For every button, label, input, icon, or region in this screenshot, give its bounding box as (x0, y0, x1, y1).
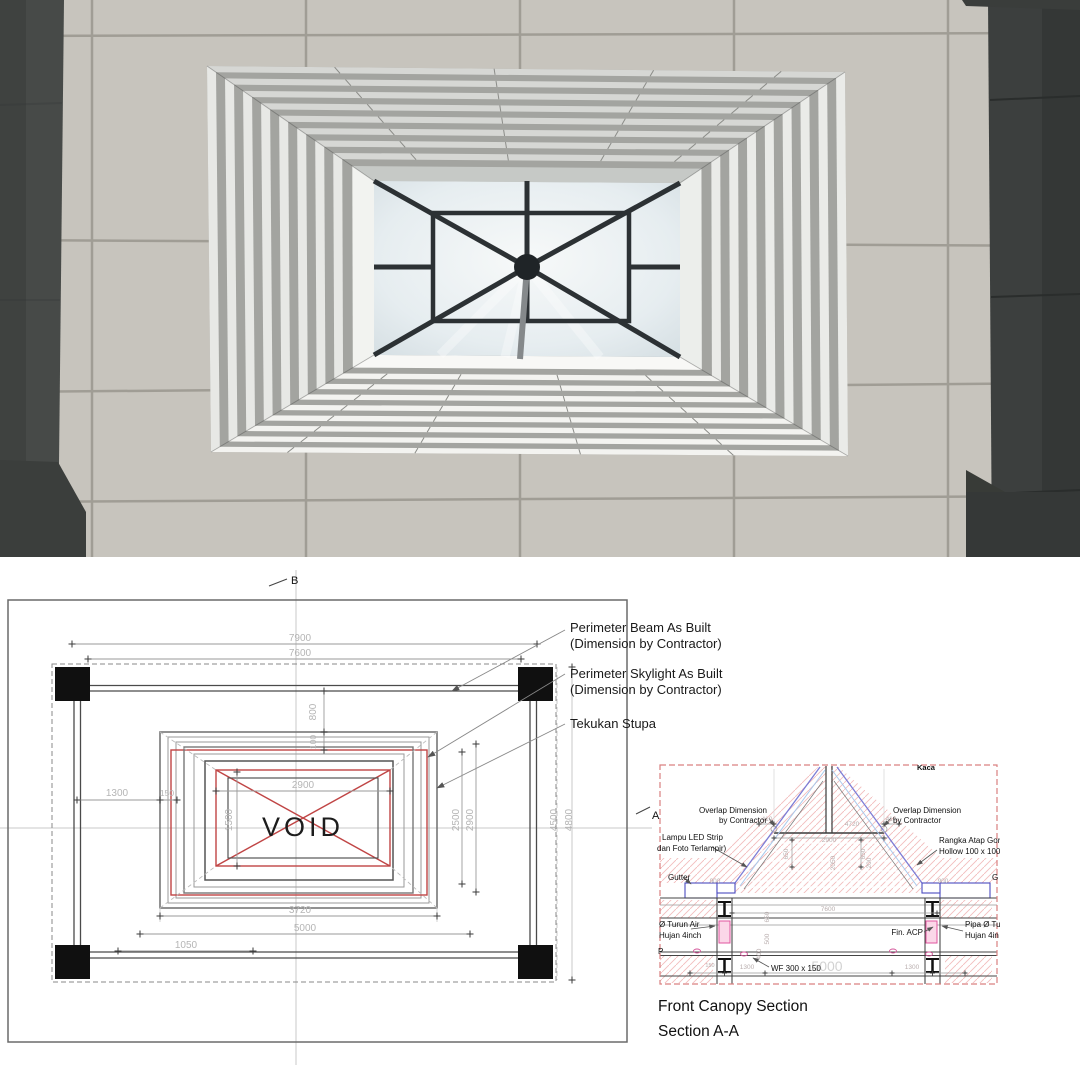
dimension-tick (321, 729, 328, 736)
annotation-label: Hujan 4in (965, 931, 999, 940)
marker-label: B (291, 575, 298, 587)
annotation-label: by Contractor (893, 816, 941, 825)
dimension-label: 100 (308, 735, 318, 749)
dimension-tick (467, 931, 474, 938)
dimension-tick (157, 913, 164, 920)
annotation-label: P (658, 947, 663, 956)
annotation-label: Pipa Ø Tu (965, 920, 1000, 929)
louver-band (297, 128, 308, 400)
dimension-label: 200 (866, 857, 873, 868)
annotation-label: Lampu LED Strip (662, 833, 723, 842)
dimension-label: 4800 (564, 808, 575, 831)
dimension-tick (473, 889, 480, 896)
shaft-wall (352, 166, 374, 368)
callout-perimeter-beam: Perimeter Beam As Built (Dimension by Co… (570, 620, 722, 651)
annotation-label: Kaca (917, 763, 936, 772)
dimension-label: 7600 (821, 906, 836, 913)
shaft-wall (353, 355, 702, 370)
annotation-label: G (992, 873, 998, 882)
void-label: VOID (262, 812, 344, 842)
dimension-label: 5000 (294, 923, 317, 934)
dimension-label: 900 (710, 878, 721, 885)
annotation-label: by Contractor (719, 816, 767, 825)
dimension-label: 400 (756, 948, 763, 959)
dimension-label: 500 (764, 933, 771, 944)
dimension-tick (434, 913, 441, 920)
dimension-label: 2050 (830, 855, 837, 870)
annotation-label: Rangka Atap Gording (939, 836, 1000, 845)
dimension-label: 2900 (822, 837, 837, 844)
dimension-tick (473, 741, 480, 748)
dimension-label: 1050 (175, 940, 198, 951)
dimension-tick (115, 948, 122, 955)
callout-line: (Dimension by Contractor) (570, 682, 722, 698)
skylight-plan-drawing: B A VOID (0, 560, 660, 1080)
annotation-label: Hujan 4inch (659, 931, 701, 940)
section-marker-b: B (269, 575, 298, 587)
dimension-tick (234, 863, 241, 870)
canopy-section-drawing: 4104720410290065065020502009009007600650… (655, 755, 1000, 990)
louver-band (315, 141, 325, 390)
callout-tekukan-stupa: Tekukan Stupa (570, 716, 656, 732)
dimension-label: 150 (160, 788, 174, 798)
louver-band (333, 153, 343, 379)
louver-band (765, 120, 776, 413)
dimension-label: 800 (308, 703, 319, 720)
annotation-label: dan Foto Terlampir) (657, 844, 727, 853)
dimension-label: 7900 (289, 633, 312, 644)
dimension-label: 650 (783, 848, 790, 859)
dimension-tick (730, 911, 735, 916)
frame-hub (514, 254, 540, 280)
dimension-tick (569, 977, 576, 984)
dimension-tick (459, 881, 466, 888)
asbuilt-sheet: { "photo": { "colors": { "tile": "#c7c4b… (0, 0, 1080, 1080)
annotation-label: Overlap Dimension (893, 806, 961, 815)
dimension-tick (518, 656, 525, 663)
dimension-label: 1300 (106, 788, 129, 799)
dimension-label: 4720 (845, 821, 860, 828)
dimension-label: 650 (764, 911, 771, 922)
louver-band (729, 144, 739, 392)
dimension-label: 2900 (465, 808, 476, 831)
callout-perimeter-skylight: Perimeter Skylight As Built (Dimension b… (570, 666, 722, 697)
dimension-tick (459, 749, 466, 756)
dimension-tick (213, 788, 220, 795)
section-subtitle: Section A-A (658, 1023, 739, 1041)
dimension-label: 1300 (740, 964, 755, 971)
dimension-tick (890, 971, 895, 976)
annotation-label: WF 300 x 150 (771, 964, 821, 973)
dimension-tick (321, 688, 328, 695)
skylight-photo (0, 0, 1080, 557)
dimension-tick (250, 948, 257, 955)
roof-hatch (660, 767, 997, 983)
annotation-label: Fin. ACP (891, 928, 923, 937)
dimension-tick (935, 911, 940, 916)
dimension-tick (69, 641, 76, 648)
dimension-label: 2500 (451, 808, 462, 831)
dimension-label: 3720 (289, 905, 312, 916)
annotation-label: Hollow 100 x 100 x 3 (939, 847, 1000, 856)
callout-line: (Dimension by Contractor) (570, 636, 722, 652)
louver-band (711, 156, 721, 381)
dimension-label: 7600 (289, 648, 312, 659)
shaft-wall (352, 166, 701, 183)
dimension-label: 4500 (549, 808, 560, 831)
callout-line: Perimeter Skylight As Built (570, 666, 722, 682)
dimension-tick (174, 797, 181, 804)
callout-leaders (428, 630, 565, 788)
skylight-glass (374, 181, 680, 359)
dimension-label: 2900 (292, 780, 315, 791)
dimension-tick (85, 656, 92, 663)
callout-line: Perimeter Beam As Built (570, 620, 722, 636)
annotation-label: Ø Turun Air (659, 920, 700, 929)
annotation-label: Overlap Dimension (699, 806, 767, 815)
dimension-label: 1300 (905, 964, 920, 971)
section-title: Front Canopy Section (658, 998, 808, 1016)
dimension-tick (137, 931, 144, 938)
louver-band (747, 132, 757, 403)
shaft-wall (680, 169, 702, 370)
annotation-label: Gutter (668, 873, 691, 882)
callout-line: Tekukan Stupa (570, 716, 656, 732)
dimension-label: 1500 (224, 808, 235, 831)
dimension-label: 150 (705, 963, 714, 969)
dimension-label: 900 (938, 878, 949, 885)
dimension-tick (763, 971, 768, 976)
